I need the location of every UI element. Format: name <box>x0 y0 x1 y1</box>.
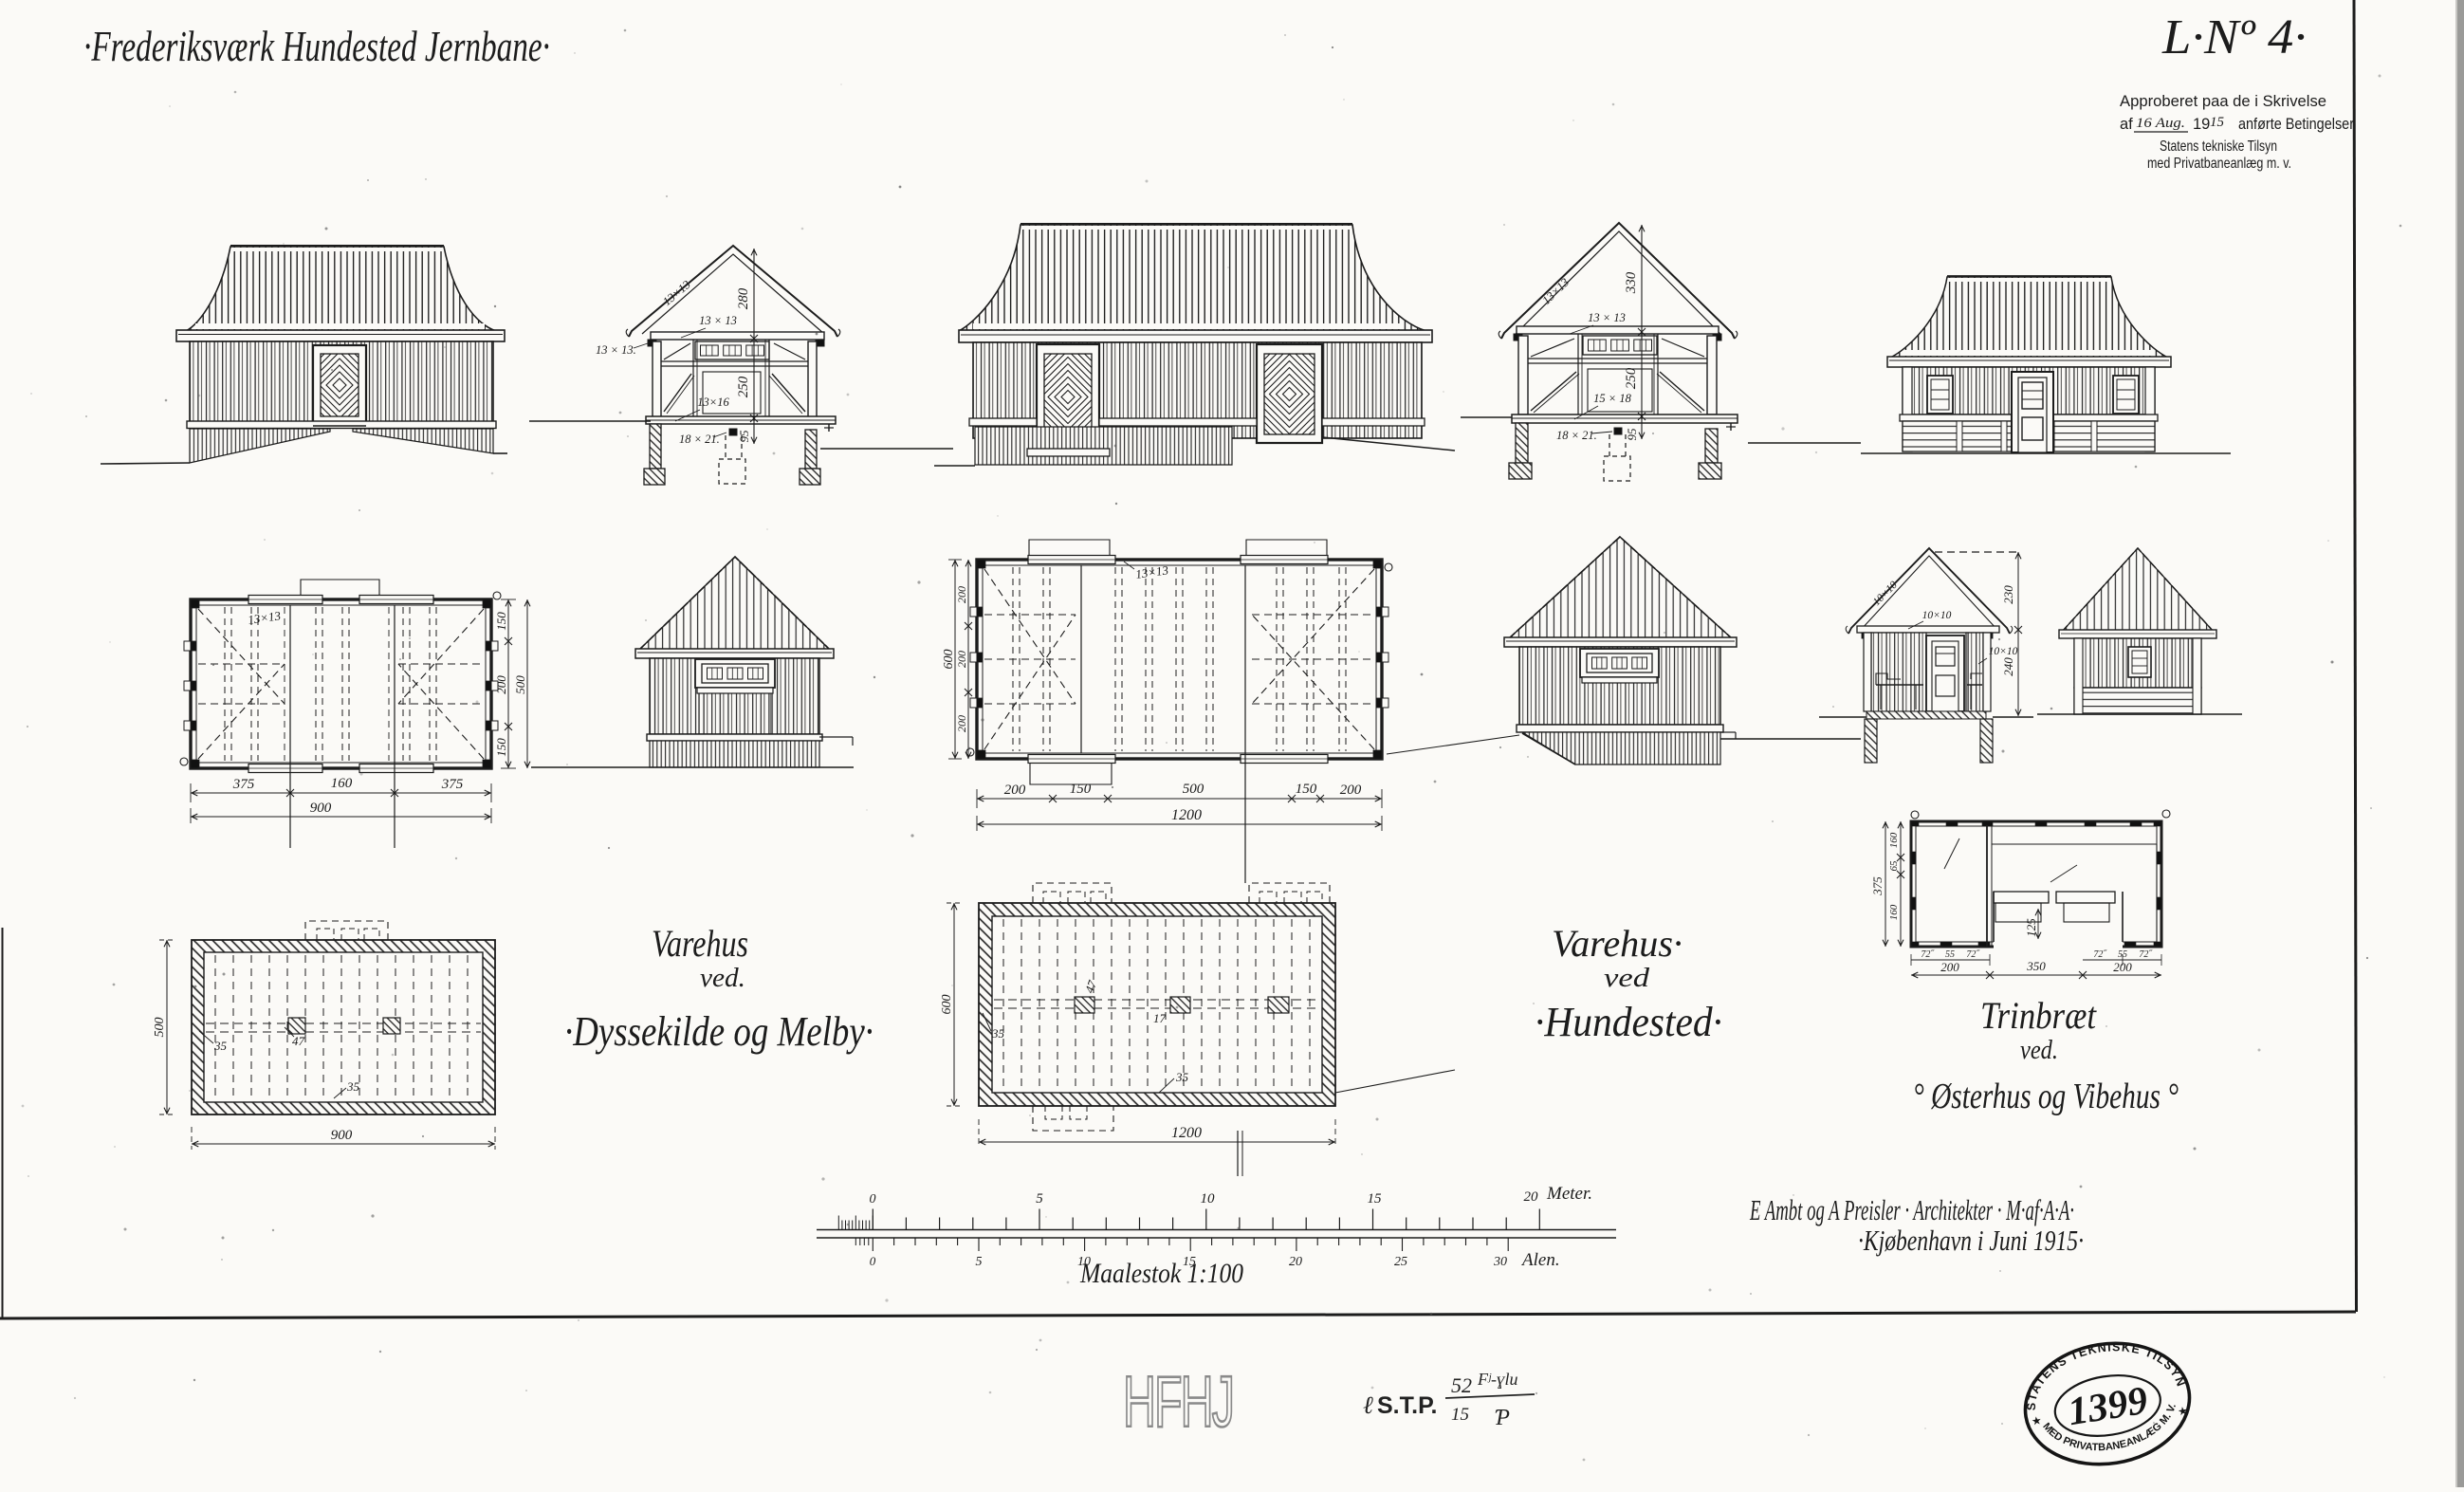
svg-text:13 × 13.: 13 × 13. <box>596 343 636 357</box>
svg-text:95: 95 <box>1625 428 1639 441</box>
svg-text:·Kjøbenhavn i Juni 1915·: ·Kjøbenhavn i Juni 1915· <box>1858 1224 2084 1257</box>
svg-text:·Frederiksværk Hundested Jer: ·Frederiksværk Hundested Jernbane· <box>83 22 550 70</box>
svg-text:200: 200 <box>955 651 968 668</box>
svg-text:200: 200 <box>955 715 968 732</box>
svg-text:15: 15 <box>1368 1191 1383 1206</box>
svg-text:200: 200 <box>1004 783 1026 798</box>
svg-text:500: 500 <box>153 1018 167 1038</box>
svg-text:anførte Betingelser: anførte Betingelser <box>2238 116 2354 133</box>
svg-text:200: 200 <box>955 586 968 603</box>
svg-text:150: 150 <box>494 738 508 757</box>
svg-text:55: 55 <box>2118 949 2127 960</box>
svg-text:16 Aug.: 16 Aug. <box>2136 116 2185 131</box>
svg-text:35: 35 <box>213 1039 228 1053</box>
svg-text:65: 65 <box>1888 860 1900 872</box>
svg-text:13×16: 13×16 <box>697 396 729 409</box>
svg-text:13 × 13: 13 × 13 <box>699 314 737 327</box>
svg-text:18 × 21.: 18 × 21. <box>1556 429 1597 442</box>
svg-text:ℓ: ℓ <box>1363 1391 1373 1419</box>
svg-text:13 × 13: 13 × 13 <box>1588 311 1626 324</box>
svg-text:0: 0 <box>870 1192 876 1206</box>
svg-text:900: 900 <box>310 801 332 816</box>
svg-text:af: af <box>2120 116 2133 133</box>
svg-text:52: 52 <box>1451 1373 1472 1397</box>
svg-text:Fʲ-ɣlu: Fʲ-ɣlu <box>1477 1370 1518 1389</box>
svg-text:20: 20 <box>1289 1255 1302 1269</box>
svg-text:600: 600 <box>940 995 954 1015</box>
svg-text:72˝: 72˝ <box>2139 949 2153 960</box>
svg-text:330: 330 <box>1624 271 1639 294</box>
svg-text:200: 200 <box>1340 783 1362 798</box>
svg-text:15: 15 <box>2210 115 2225 130</box>
svg-text:200: 200 <box>1940 960 1959 974</box>
svg-text:med Privatbaneanlæg m. v.: med Privatbaneanlæg m. v. <box>2147 156 2291 172</box>
svg-text:19: 19 <box>2193 116 2210 133</box>
svg-text:Varehus·: Varehus· <box>1552 922 1683 965</box>
svg-text:125: 125 <box>2024 918 2038 937</box>
svg-text:HFHJ: HFHJ <box>1123 1362 1233 1443</box>
svg-text:240: 240 <box>2001 657 2015 676</box>
svg-text:° Østerhus og Vibehus °: ° Østerhus og Vibehus ° <box>1913 1077 2179 1116</box>
svg-text:5: 5 <box>1036 1191 1043 1206</box>
svg-text:230: 230 <box>2001 585 2015 604</box>
svg-text:10: 10 <box>1201 1191 1216 1206</box>
svg-text:150: 150 <box>1296 782 1317 797</box>
svg-text:ved: ved <box>1604 964 1650 993</box>
svg-text:10×10: 10×10 <box>1922 610 1952 621</box>
svg-text:47: 47 <box>292 1034 305 1048</box>
svg-text:600: 600 <box>942 650 956 670</box>
svg-text:E Ambt og A Preisler · Archite: E Ambt og A Preisler · Architekter · M·a… <box>1749 1193 2074 1226</box>
svg-text:1200: 1200 <box>1171 807 1202 823</box>
svg-text:280: 280 <box>736 287 751 309</box>
svg-text:10×10: 10×10 <box>1989 646 2018 657</box>
svg-text:ved.: ved. <box>2020 1036 2058 1065</box>
svg-text:160: 160 <box>1888 832 1900 848</box>
svg-text:★: ★ <box>2177 1404 2189 1419</box>
svg-text:900: 900 <box>331 1128 353 1143</box>
svg-text:18 × 21.: 18 × 21. <box>679 433 720 446</box>
svg-text:160: 160 <box>331 776 353 791</box>
svg-text:17: 17 <box>1153 1011 1167 1025</box>
svg-text:72˝: 72˝ <box>1921 949 1935 960</box>
svg-text:L·Nº 4·: L·Nº 4· <box>2161 10 2307 64</box>
svg-text:20: 20 <box>1524 1189 1539 1205</box>
svg-text:375: 375 <box>441 777 464 792</box>
svg-text:Maalestok 1:100: Maalestok 1:100 <box>1079 1258 1243 1289</box>
svg-text:200: 200 <box>2113 960 2132 974</box>
svg-text:·Dyssekilde og Melby·: ·Dyssekilde og Melby· <box>564 1008 873 1055</box>
svg-text:Approberet paa de i Skrivelse: Approberet paa de i Skrivelse <box>2120 93 2326 110</box>
svg-text:Meter.: Meter. <box>1546 1184 1592 1204</box>
svg-text:250: 250 <box>736 376 751 397</box>
svg-text:35: 35 <box>991 1026 1005 1041</box>
svg-text:200: 200 <box>494 675 508 694</box>
svg-text:15 × 18: 15 × 18 <box>1593 392 1631 405</box>
svg-text:Alen.: Alen. <box>1520 1250 1560 1270</box>
svg-text:250: 250 <box>1624 367 1639 389</box>
svg-text:·Hundested·: ·Hundested· <box>1535 999 1722 1045</box>
svg-text:350: 350 <box>2026 959 2046 973</box>
svg-text:375: 375 <box>1870 876 1885 896</box>
svg-text:30: 30 <box>1493 1255 1507 1269</box>
svg-text:72˝: 72˝ <box>1966 949 1980 960</box>
svg-text:500: 500 <box>513 675 527 694</box>
svg-text:Varehus: Varehus <box>652 922 748 965</box>
svg-text:35: 35 <box>346 1079 360 1094</box>
svg-text:25: 25 <box>1394 1255 1407 1269</box>
svg-text:72˝: 72˝ <box>2093 949 2107 960</box>
svg-text:ved.: ved. <box>700 964 745 993</box>
svg-text:5: 5 <box>976 1255 983 1269</box>
svg-text:150: 150 <box>494 612 508 631</box>
svg-text:Trinbræt: Trinbræt <box>1980 994 2097 1037</box>
svg-text:150: 150 <box>1070 782 1092 797</box>
svg-text:S.T.P.: S.T.P. <box>1377 1392 1437 1419</box>
svg-text:1200: 1200 <box>1171 1125 1202 1141</box>
svg-text:95: 95 <box>737 430 751 443</box>
svg-text:Statens tekniske Tilsyn: Statens tekniske Tilsyn <box>2160 138 2277 155</box>
svg-text:160: 160 <box>1888 904 1900 920</box>
svg-text:15: 15 <box>1451 1405 1469 1425</box>
svg-text:Ƥ: Ƥ <box>1495 1406 1510 1430</box>
svg-text:35: 35 <box>1175 1070 1189 1084</box>
svg-text:★: ★ <box>2031 1413 2043 1428</box>
svg-text:375: 375 <box>232 777 255 792</box>
svg-text:55: 55 <box>1945 949 1955 960</box>
svg-text:500: 500 <box>1183 782 1204 797</box>
svg-text:0: 0 <box>870 1254 876 1268</box>
